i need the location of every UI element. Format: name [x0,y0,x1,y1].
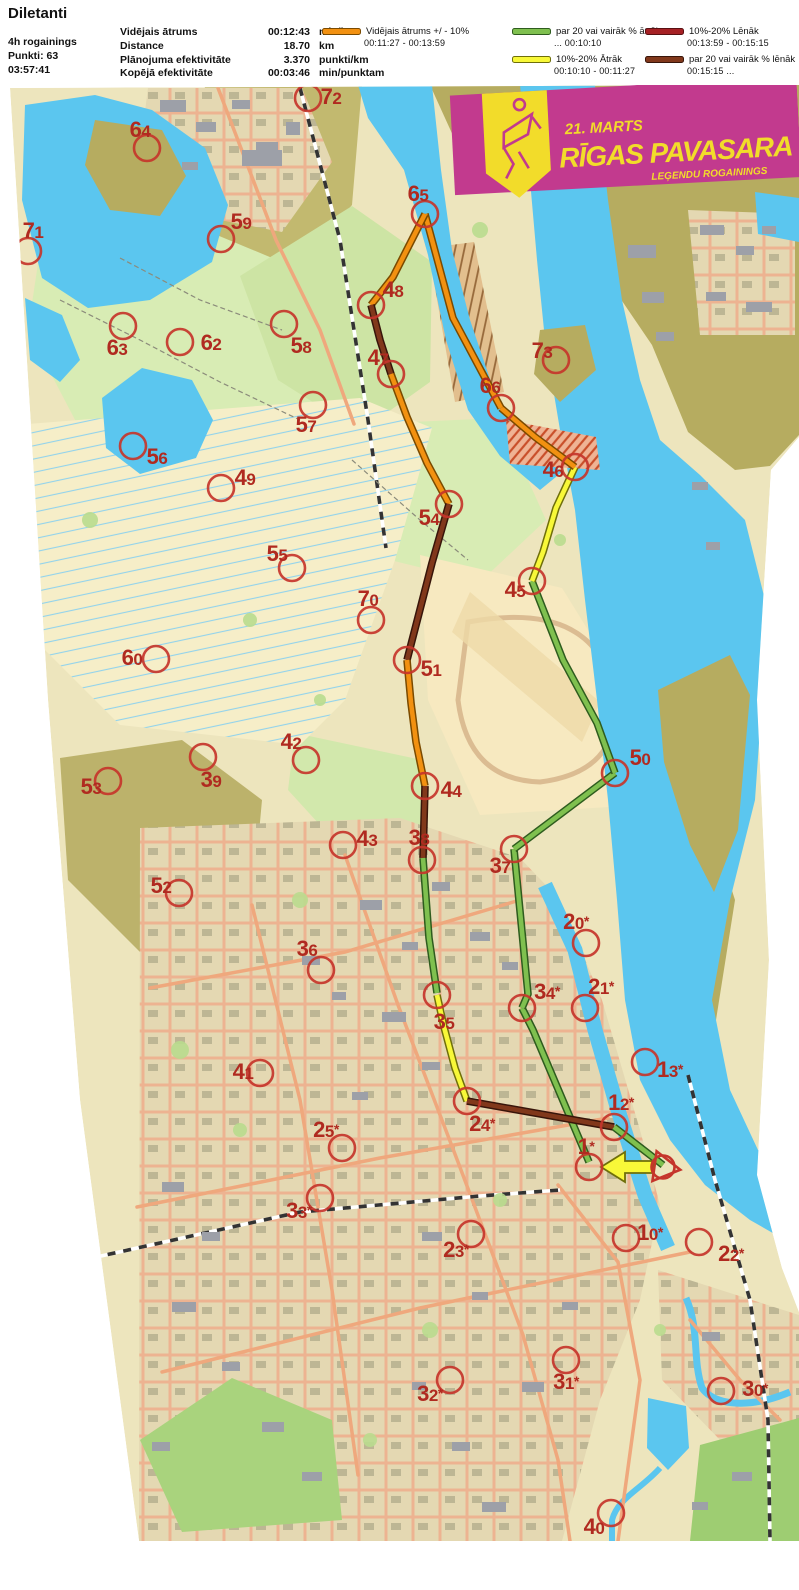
legend-label: 10%-20% Ātrāk [556,54,622,65]
legend-swatch-slow20 [645,56,684,63]
summary-line: 03:57:41 [8,64,77,78]
summary-line: 4h rogainings [8,36,77,50]
legend-item: 10%-20% Ātrāk [512,54,661,65]
results-header: Diletanti 4h rogainingsPunkti: 6303:57:4… [0,0,799,85]
stat-value: 00:03:46 [258,67,310,81]
legend-item: Vidējais ātrums +/ - 10% [322,26,469,37]
stat-row: Kopējā efektivitāte00:03:46min/punktam [120,67,384,81]
stat-label: Distance [120,40,258,54]
stat-row: Plānojuma efektivitāte3.370punkti/km [120,54,384,68]
stat-unit: min/punktam [310,67,384,81]
stat-unit: punkti/km [310,54,369,68]
stat-value: 00:12:43 [258,26,310,40]
legend-range: 00:11:27 - 00:13:59 [364,38,469,48]
team-name: Diletanti [8,5,67,22]
map-artwork [10,85,799,1541]
stat-value: 3.370 [258,54,310,68]
legend-range: 00:13:59 - 00:15:15 [687,38,795,48]
legend-column: Vidējais ātrums +/ - 10%00:11:27 - 00:13… [322,26,469,54]
rogaining-results-page: { "header": { "title": "Diletanti", "lef… [0,0,799,1590]
legend-column: 10%-20% Lēnāk00:13:59 - 00:15:15par 20 v… [645,26,795,82]
legend-label: 10%-20% Lēnāk [689,26,759,37]
legend-column: par 20 vai vairāk % ātrāk... 00:10:1010%… [512,26,661,82]
legend-swatch-fast10 [512,56,551,63]
stat-value: 18.70 [258,40,310,54]
rogaining-map: 7264715963625865484773665756494654554570… [0,0,799,1590]
legend-swatch-avg [322,28,361,35]
legend-label: par 20 vai vairāk % lēnāk [689,54,795,65]
legend-item: 10%-20% Lēnāk [645,26,795,37]
event-summary: 4h rogainingsPunkti: 6303:57:41 [8,36,77,77]
legend-range: 00:15:15 ... [687,66,795,76]
stat-label: Vidējais ātrums [120,26,258,40]
legend-swatch-slow10 [645,28,684,35]
summary-line: Punkti: 63 [8,50,77,64]
legend-label: Vidējais ātrums +/ - 10% [366,26,469,37]
legend-item: par 20 vai vairāk % lēnāk [645,54,795,65]
legend-swatch-fast20 [512,28,551,35]
legend-item: par 20 vai vairāk % ātrāk [512,26,661,37]
stat-label: Plānojuma efektivitāte [120,54,258,68]
stat-label: Kopējā efektivitāte [120,67,258,81]
